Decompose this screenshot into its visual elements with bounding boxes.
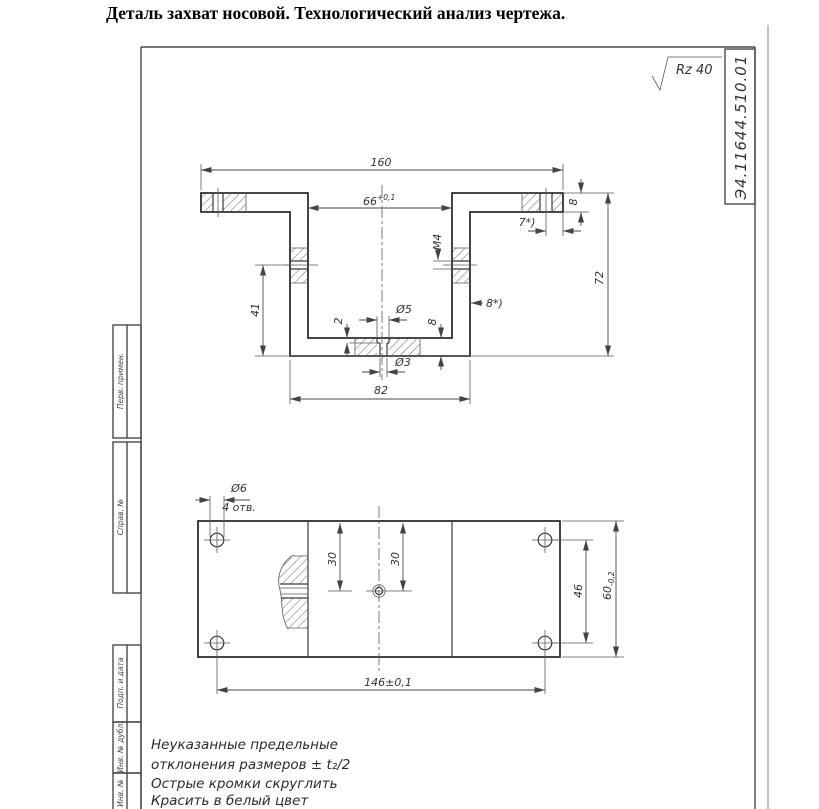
mounting-holes	[204, 527, 558, 694]
center-hole-section	[377, 338, 389, 356]
dim-hole-dia: Ø3	[394, 356, 411, 369]
plan-hole-dia: Ø6	[230, 482, 247, 495]
dim-hole-spacing-h: 146±0,1	[364, 676, 412, 689]
note-line-4: Красить в белый цвет	[151, 793, 308, 809]
dim-hole-spacing-v: 46	[572, 584, 585, 598]
roughness-value: Rz 40	[676, 63, 713, 78]
note-line-3: Острые кромки скруглить	[151, 776, 338, 792]
drawing-canvas: Э4.11644.510.01 Rz 40 Перв. примен. Спра…	[0, 0, 819, 809]
stamp-field-podp-data: Подп. и дата	[116, 657, 125, 708]
note-line-1: Неуказанные предельные	[151, 737, 338, 753]
dim-depth: 41	[249, 303, 262, 317]
stamp-field-inv-dubl: Инв. № дубл.	[116, 721, 125, 772]
dim-wall-ref: 8*)	[486, 297, 503, 310]
dim-width-total: 160	[371, 156, 392, 169]
dim-flange-thickness: 8	[567, 199, 580, 206]
plan-hole-count: 4 отв.	[222, 501, 256, 514]
dim-height-total: 72	[593, 271, 606, 285]
dim-cbore-depth: 2	[332, 318, 345, 325]
sheet-frame: Э4.11644.510.01 Rz 40 Перв. примен. Спра…	[113, 25, 768, 809]
stamp-fields: Перв. примен. Справ. № Подп. и дата Инв.…	[113, 325, 141, 809]
thread-callout: М4	[431, 234, 444, 251]
doc-number: Э4.11644.510.01	[732, 55, 750, 201]
stamp-field-inv-no: Инв. №	[116, 779, 125, 807]
dim-plan-height-tol: -0,2	[607, 571, 616, 586]
dim-edge-ref: 7*)	[519, 216, 536, 229]
dim-plan-height: 60-0,2	[601, 571, 616, 600]
dim-opening-width: 66+0,1	[363, 193, 395, 208]
dim-cbore-dia: Ø5	[395, 303, 412, 316]
dim-base-width: 82	[374, 384, 388, 397]
front-section-view: 160 66+0,1 41 2 Ø5 8	[201, 156, 614, 404]
stamp-field-perv-primen: Перв. примен.	[116, 353, 125, 409]
dim-base-thickness: 8	[426, 319, 439, 326]
broken-out-section	[279, 555, 308, 629]
dim-offset-right: 30	[389, 552, 402, 566]
dim-opening-width-tol: +0,1	[377, 193, 395, 202]
plan-view: Ø6 4 отв. 30 30 46 60-0,2 146±0,1	[195, 482, 624, 694]
note-line-2: отклонения размеров ± t₂/2	[151, 757, 350, 773]
dim-offset-left: 30	[326, 552, 339, 566]
drawing-sheet: Деталь захват носовой. Технологический а…	[0, 0, 819, 809]
stamp-field-sprav-no: Справ. №	[116, 499, 125, 536]
